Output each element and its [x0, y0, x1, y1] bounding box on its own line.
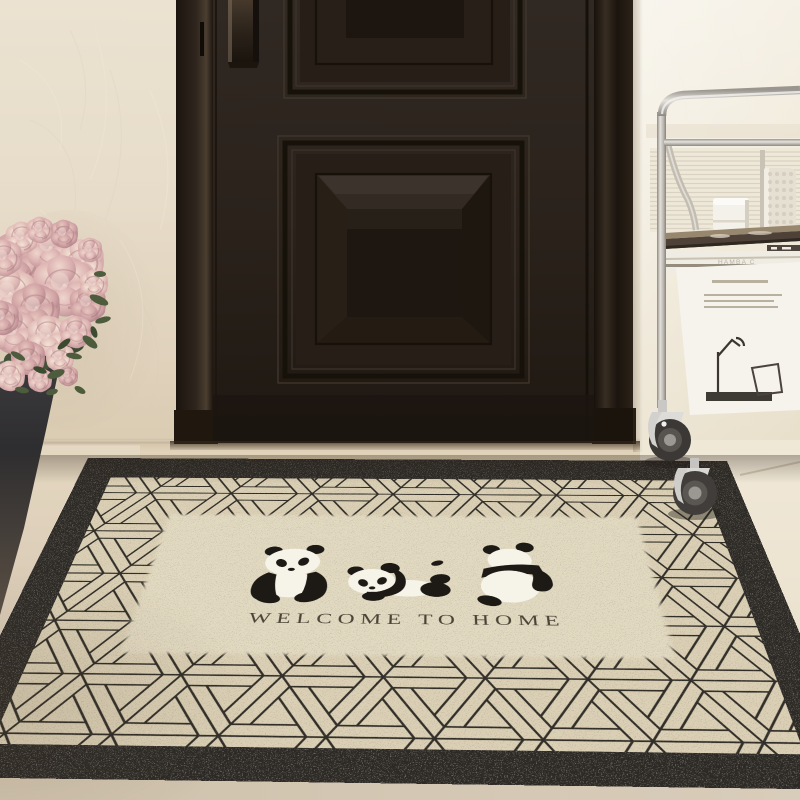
svg-text:WELCOME TO HOME: WELCOME TO HOME — [247, 610, 567, 629]
